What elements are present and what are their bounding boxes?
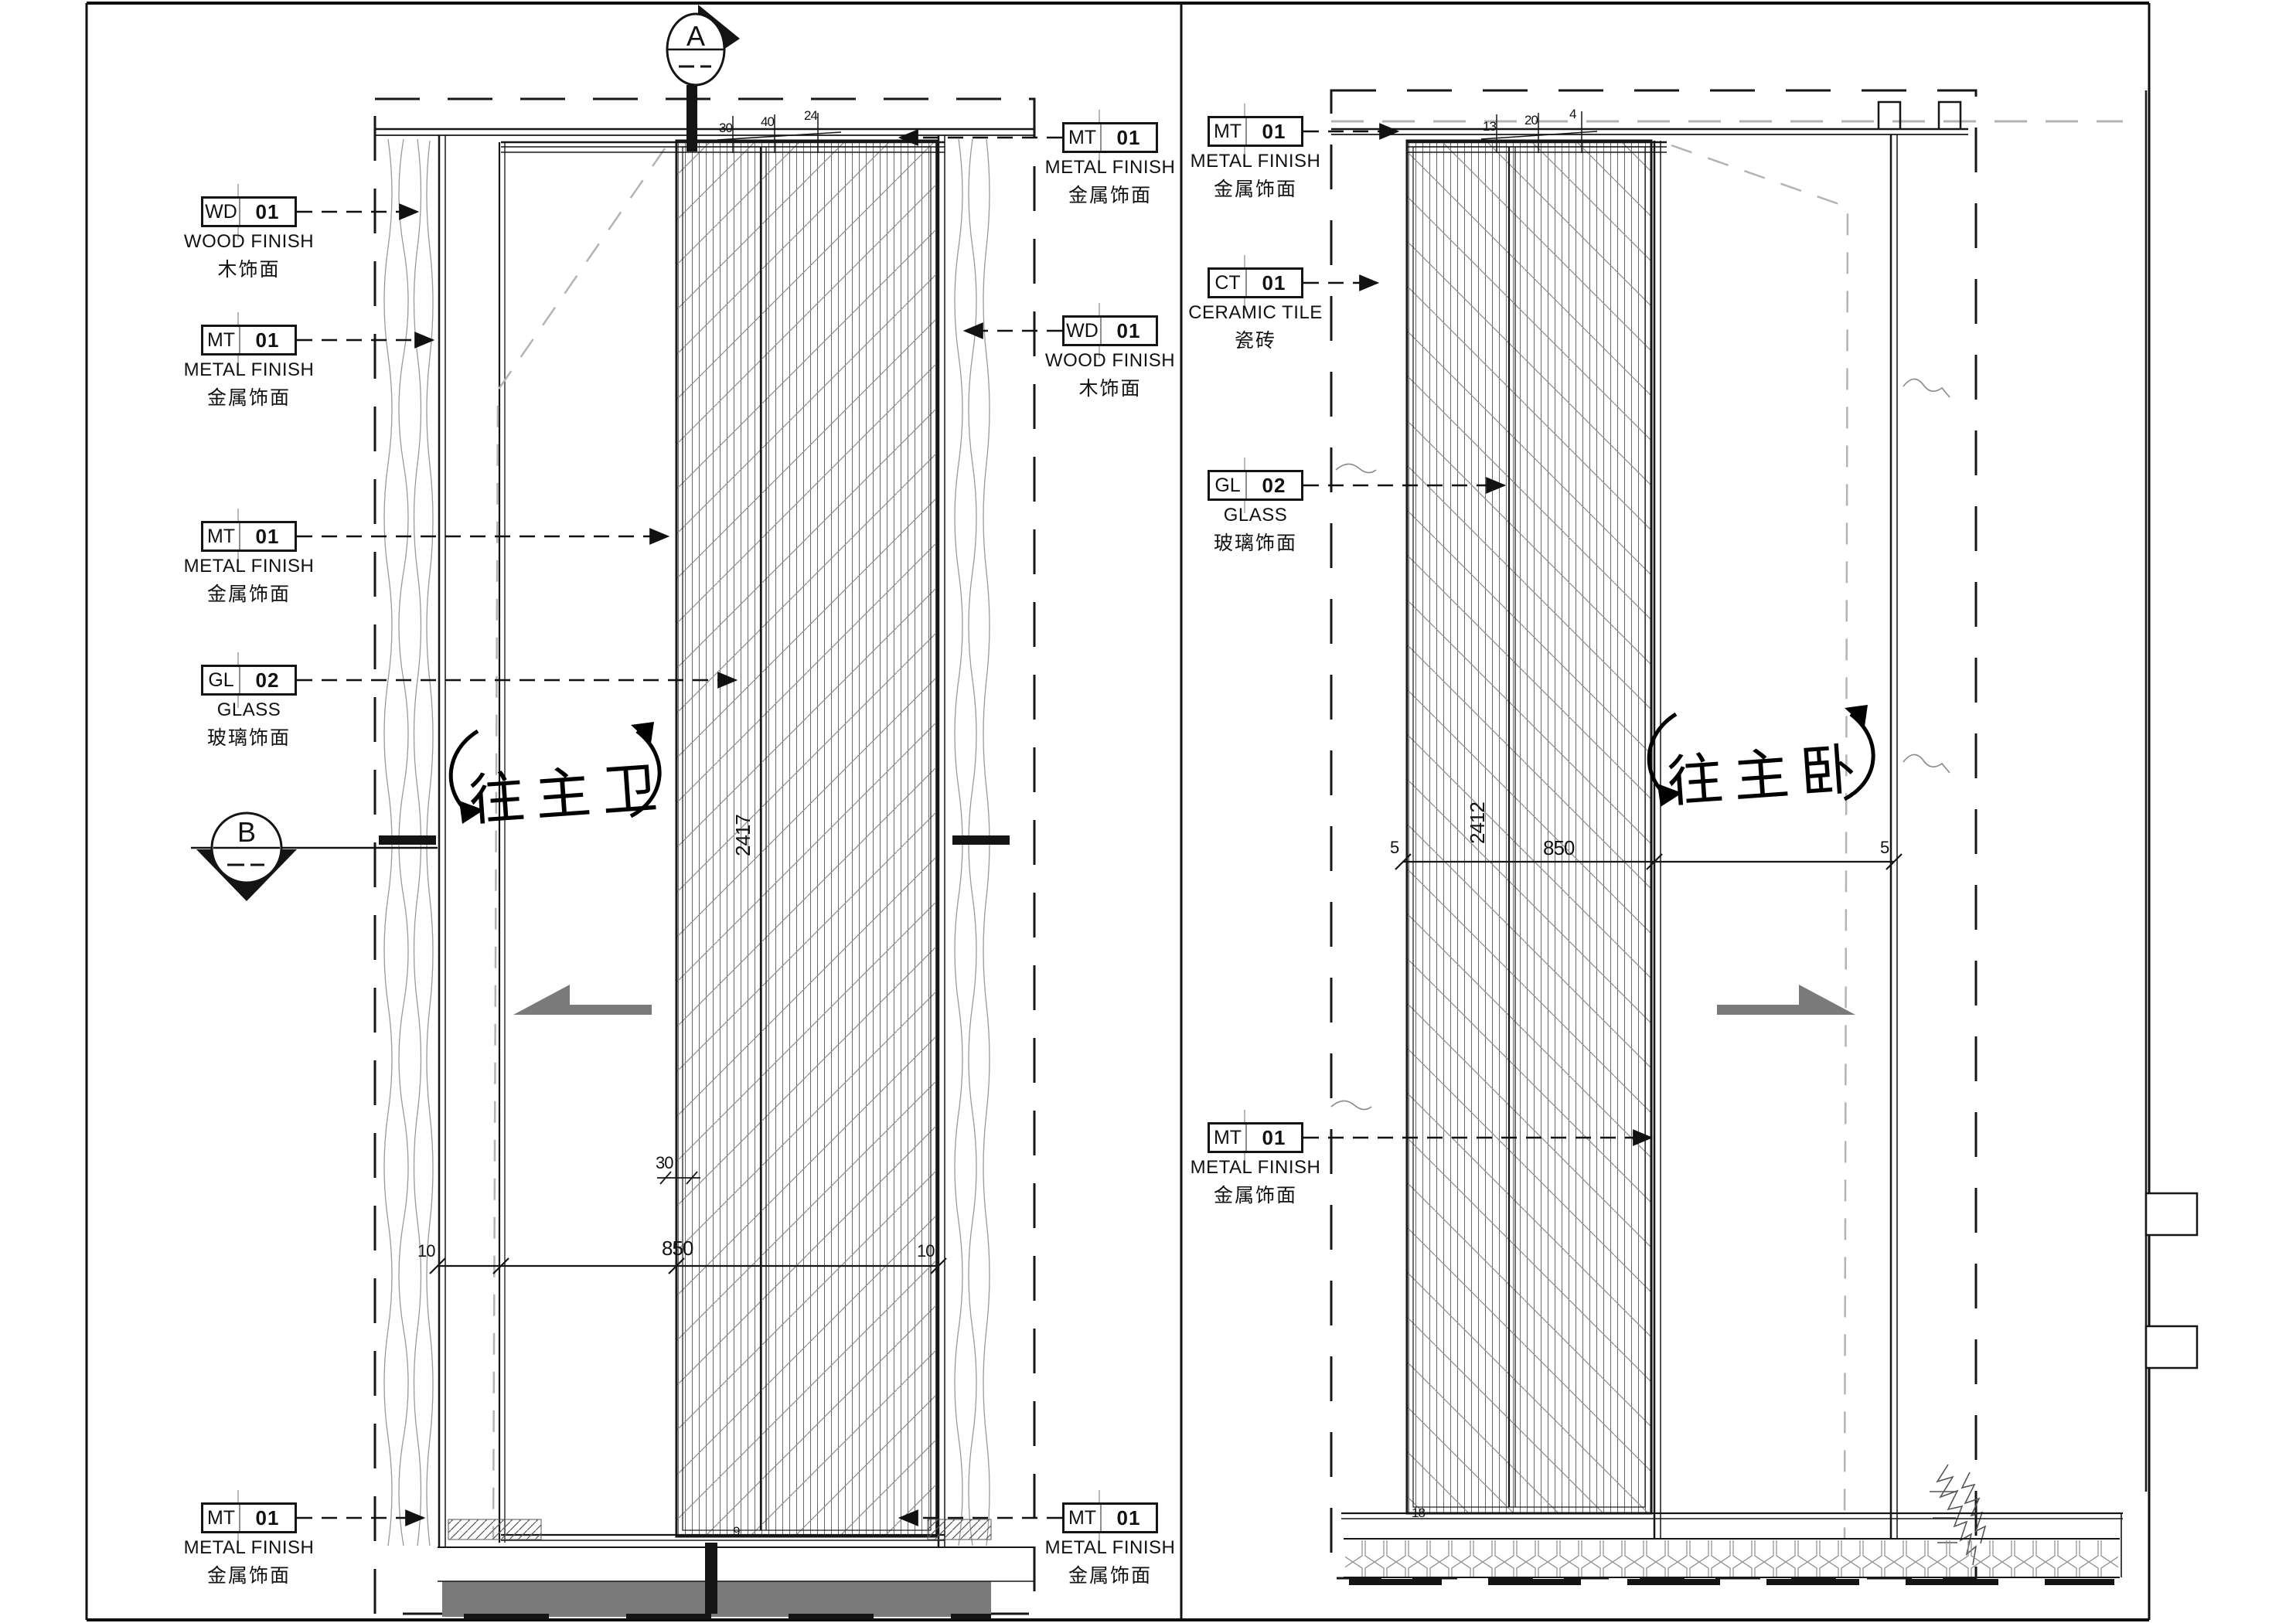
- tag-number: 01: [240, 327, 295, 353]
- tag-name-zh: 金属饰面: [1214, 1180, 1297, 1208]
- material-tag-mt01-rightsheet-bottom: MT01 METAL FINISH 金属饰面: [1208, 1122, 1303, 1208]
- handwritten-note-to-master-bedroom: 往主卧: [1664, 723, 1869, 818]
- material-tag-mt01-left-mid: MT01 METAL FINISH 金属饰面: [201, 521, 297, 607]
- door-leaf-left-sheet: [676, 141, 937, 1536]
- tag-name-en: METAL FINISH: [184, 1537, 315, 1559]
- dim-end-left-right: 5: [1390, 838, 1398, 858]
- tag-name-zh: 金属饰面: [1214, 174, 1297, 202]
- tag-code: WD: [1065, 318, 1102, 344]
- material-tag-ct01-rightsheet: CT01 CERAMIC TILE 瓷砖: [1208, 267, 1303, 353]
- section-marker-a-letter: A: [680, 20, 711, 53]
- material-tag-mt01-rightsheet-top: MT01 METAL FINISH 金属饰面: [1208, 116, 1303, 202]
- material-tag-gl02-left: GL02 GLASS 玻璃饰面: [201, 665, 297, 750]
- tag-code: MT: [1210, 1125, 1247, 1151]
- dim-door-width-left: 850: [662, 1237, 693, 1261]
- material-tag-wd01-left: WD01 WOOD FINISH 木饰面: [201, 196, 297, 282]
- tag-code: CT: [1210, 270, 1247, 296]
- floor-right-sheet: [1341, 1513, 2123, 1585]
- tag-code: MT: [203, 327, 240, 353]
- tag-name-zh: 木饰面: [217, 254, 280, 282]
- tag-name-en: WOOD FINISH: [1045, 350, 1175, 372]
- tag-name-en: METAL FINISH: [1191, 1157, 1321, 1179]
- slide-direction-right-icon: [1717, 985, 1855, 1015]
- dim-gap-right: 10: [917, 1241, 934, 1261]
- tag-code: MT: [203, 1505, 240, 1531]
- material-tag-mt01-leftsheet-right-top: MT01 METAL FINISH 金属饰面: [1062, 122, 1158, 208]
- tag-number: 01: [1102, 124, 1156, 151]
- dim-track-left: 30: [656, 1153, 673, 1173]
- dim-top-stack-left-1: 40: [761, 114, 774, 130]
- tag-name-zh: 木饰面: [1078, 373, 1141, 401]
- tag-name-en: GLASS: [217, 699, 281, 721]
- door-leaf-right-sheet: [1407, 141, 1651, 1513]
- tag-number: 02: [240, 667, 295, 693]
- tag-code: MT: [203, 523, 240, 550]
- tag-code: WD: [203, 199, 240, 225]
- cad-detail-drawing: WD01 WOOD FINISH 木饰面 MT01 METAL FINISH 金…: [0, 0, 2296, 1623]
- tag-name-en: WOOD FINISH: [184, 231, 314, 253]
- material-tag-mt01-left-upper: MT01 METAL FINISH 金属饰面: [201, 325, 297, 410]
- tag-code: MT: [1210, 118, 1247, 145]
- drawing-linework: [0, 0, 2296, 1623]
- tag-name-en: METAL FINISH: [1045, 1537, 1176, 1559]
- tag-code: GL: [203, 667, 240, 693]
- tag-name-en: METAL FINISH: [1045, 157, 1176, 179]
- dim-top-stack-left-2: 24: [804, 108, 817, 124]
- jamb-step-1: [1879, 102, 1900, 129]
- tag-number: 01: [240, 523, 295, 550]
- dim-top-stack-right-1: 20: [1524, 113, 1538, 128]
- material-tag-gl02-rightsheet: GL02 GLASS 玻璃饰面: [1208, 470, 1303, 556]
- right-wall-profile: [2146, 90, 2197, 1492]
- tag-name-zh: 玻璃饰面: [1214, 528, 1297, 556]
- tag-name-zh: 金属饰面: [1068, 1560, 1152, 1588]
- tag-number: 02: [1247, 472, 1301, 498]
- tag-number: 01: [240, 1505, 295, 1531]
- dim-door-height-right: 2412: [1466, 802, 1490, 844]
- tag-name-zh: 金属饰面: [1068, 180, 1152, 208]
- dim-top-stack-right-2: 4: [1569, 107, 1576, 122]
- handwritten-note-to-master-bath: 往主卫: [466, 741, 671, 836]
- material-tag-wd01-leftsheet-right: WD01 WOOD FINISH 木饰面: [1062, 315, 1158, 401]
- dim-top-stack-left-0: 30: [719, 121, 732, 136]
- tag-name-en: CERAMIC TILE: [1188, 302, 1323, 324]
- dim-bottom-stack-left: 9: [733, 1524, 739, 1540]
- tag-code: MT: [1065, 1505, 1102, 1531]
- right-sheet-linework: [1303, 90, 2197, 1585]
- material-tag-mt01-leftsheet-right-bottom: MT01 METAL FINISH 金属饰面: [1062, 1502, 1158, 1588]
- tag-number: 01: [1247, 270, 1301, 296]
- tag-code: GL: [1210, 472, 1247, 498]
- tag-number: 01: [240, 199, 295, 225]
- phantom-door-path: [493, 148, 665, 1540]
- tag-number: 01: [1102, 318, 1156, 344]
- dim-door-width-right: 850: [1543, 836, 1574, 860]
- tag-name-zh: 金属饰面: [207, 383, 291, 410]
- tag-name-zh: 瓷砖: [1235, 325, 1276, 353]
- jamb-step-2: [1939, 102, 1960, 129]
- tag-name-en: METAL FINISH: [184, 359, 315, 381]
- slide-direction-left-icon: [513, 985, 652, 1015]
- section-marker-b-letter: B: [231, 816, 262, 849]
- tag-name-zh: 玻璃饰面: [207, 723, 291, 750]
- tag-name-en: METAL FINISH: [184, 556, 315, 577]
- tag-number: 01: [1247, 1125, 1301, 1151]
- sheet-borders: [87, 3, 2149, 1620]
- dim-bottom-stack-right: 18: [1412, 1506, 1425, 1521]
- dim-gap-left: 10: [417, 1241, 434, 1261]
- tag-name-zh: 金属饰面: [207, 1560, 291, 1588]
- tag-number: 01: [1247, 118, 1301, 145]
- tag-name-en: METAL FINISH: [1191, 151, 1321, 172]
- dim-top-stack-right-0: 13: [1483, 119, 1496, 134]
- material-tag-mt01-left-bottom: MT01 METAL FINISH 金属饰面: [201, 1502, 297, 1588]
- dim-end-right-right: 5: [1880, 838, 1889, 858]
- dim-door-height-left: 2417: [731, 815, 755, 856]
- phantom-door-path-right: [1671, 145, 1848, 1538]
- tag-code: MT: [1065, 124, 1102, 151]
- tag-number: 01: [1102, 1505, 1156, 1531]
- tag-name-zh: 金属饰面: [207, 579, 291, 607]
- tag-name-en: GLASS: [1224, 505, 1288, 526]
